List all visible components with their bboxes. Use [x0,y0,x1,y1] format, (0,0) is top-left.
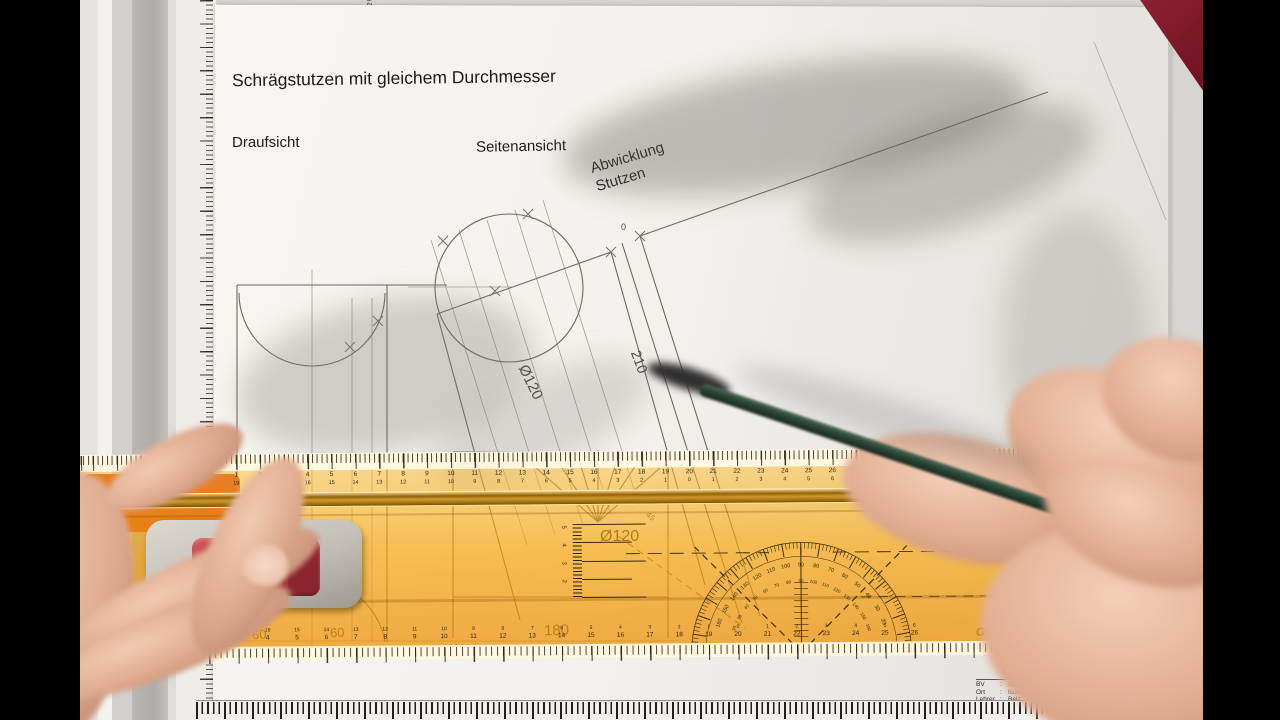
ruler-number: 15 [584,632,598,639]
ruler-number: 14 [539,469,553,476]
ruler-number: 4 [587,478,601,484]
protractor-degree-label: 150 [859,612,867,621]
protractor-degree-label: 70 [827,567,835,575]
ruler-number: 15 [563,469,577,476]
ruler-number: 4 [778,476,792,482]
protractor-degree-label: 120 [752,572,763,582]
ruler-number: 21 [706,468,720,475]
ruler-number: 12 [496,633,510,640]
ruler-number: 14 [555,632,569,639]
ruler-number: 1 [706,477,720,483]
protractor-degree-label: 60 [840,573,848,581]
ruler-number: 5 [878,623,892,629]
ruler-number: 23 [754,468,768,475]
ruler-number: 4 [849,623,863,629]
ruler-number: 7 [525,625,539,631]
ruler-number: 9 [466,626,480,632]
ruler-number: 26 [825,467,839,474]
ruler-number: 2 [635,478,649,484]
ruler-number: 18 [635,469,649,476]
ruler-number: 13 [525,632,539,639]
ruler-number: 15 [325,480,339,486]
ruler-number: 15 [290,627,304,633]
ruler-number: 1 [659,477,673,483]
ruler-number: 7 [349,634,363,641]
ruler-number: 10 [444,470,458,477]
protractor-degree-label: 30 [872,604,880,612]
ruler-number: 1 [229,472,243,479]
ruler-number: 26 [907,629,921,636]
ruler-number: 9 [420,470,434,477]
mini-scale-number: 5 [560,526,566,529]
protractor-degree-label: 140 [729,591,739,602]
ruler-number: 0 [731,624,745,630]
ruler-number: 25 [878,630,892,637]
letterbox-right [1203,0,1280,720]
protractor-degree-label: 100 [781,563,791,571]
ruler-number: 16 [587,469,601,476]
ruler-number: 22 [790,630,804,637]
ruler-number: 5 [325,471,339,478]
ruler-number: 6 [348,471,362,478]
ruler-number: 11 [466,633,480,640]
ruler-number: 6 [825,476,839,482]
ruler-number: 7 [515,478,529,484]
ruler-number: 17 [611,469,625,476]
ruler-number: 2 [730,477,744,483]
ruler-number: 5 [584,625,598,631]
ruler-number: 19 [658,468,672,475]
paper-corner-line [1094,42,1166,220]
ruler-number: 24 [849,630,863,637]
letterbox-left [0,0,80,720]
mini-scale-number: 3 [561,562,567,565]
protractor-degree-label: 130 [843,593,852,602]
ruler-number: 0 [682,477,696,483]
ruler-number: 10 [444,479,458,485]
ruler-number: 1 [702,624,716,630]
protractor-degree-label: 150 [721,604,731,615]
protractor-degree-label: 50 [853,581,862,590]
ruler-number: 8 [378,634,392,641]
ruler-number: 6 [539,478,553,484]
ruler-number: 11 [420,479,434,485]
ruler-number: 3 [611,478,625,484]
ruler-number: 8 [396,470,410,477]
ruler-number: 24 [778,467,792,474]
ruler-number: 5 [563,478,577,484]
ruler-number: 4 [261,634,275,641]
protractor-degree-label: 110 [766,566,776,575]
ruler-number: 18 [672,631,686,638]
ruler-number: 2 [672,624,686,630]
ruler-number: 9 [408,633,422,640]
protractor-degree-label: 140 [852,601,861,610]
ruler-number: 17 [643,631,657,638]
ruler-number: 16 [613,632,627,639]
ruler-number: 12 [491,470,505,477]
mini-scale-number: 4 [560,544,566,547]
ruler-number: 21 [760,631,774,638]
ruler-number: 25 [802,467,816,474]
protractor-degree-label: 40 [864,592,873,601]
ruler-number: 9 [468,479,482,485]
protractor-degree-label: 50 [752,594,759,601]
photo-drafting-board: 14 2913 2812 2711 2610 259 248 237 226 2… [0,0,1280,720]
ruler-number: 2 [790,623,804,629]
ruler-number: 7 [372,471,386,478]
ruler-number: 20 [682,468,696,475]
label-side-view: Seitenansicht [476,137,566,156]
protractor-degree-label: 120 [832,586,841,594]
ruler-number: 13 [372,480,386,486]
protractor-degree-label: 80 [813,563,820,570]
protractor-degree-label: 40 [743,603,750,610]
ruler-number: 10 [437,626,451,632]
left-fingernail [242,544,288,586]
ruler-number: 22 [730,468,744,475]
mini-scale-number: 2 [561,580,567,583]
ruler-number: 5 [802,476,816,482]
ruler-number: 13 [515,469,529,476]
ruler-number: 14 [319,627,333,633]
ruler-number: 3 [819,623,833,629]
ruler-number: 19 [229,481,243,487]
zero-mark: 0 [621,222,626,232]
protractor-degree-label: 60 [762,587,769,594]
ruler-number: 14 [348,480,362,486]
ruler-number: 6 [319,634,333,641]
ruler-number: 8 [496,626,510,632]
ruler-number: 12 [378,627,392,633]
ruler-number: 11 [468,470,482,477]
ruler-number: 1 [760,624,774,630]
protractor-degree-label: 80 [786,579,792,585]
ruler-number: 3 [643,624,657,630]
ruler-number: 10 [437,633,451,640]
ruler-number: 8 [492,479,506,485]
protractor-degree-label: 130 [740,581,751,592]
ruler-number: 6 [907,622,921,628]
stamp-cell: BV [976,681,1000,689]
ruler-number: 4 [613,625,627,631]
protractor-degree-label: 110 [821,581,830,588]
ruler-number: 12 [396,479,410,485]
ruler-number: 3 [754,477,768,483]
label-top-view: Draufsicht [232,134,300,151]
protractor-degree-label: 70 [773,582,780,589]
protractor-degree-label: 100 [809,579,818,585]
ruler-number: 5 [290,634,304,641]
stamp-cell: Ort [976,689,1000,697]
ruler-number: 23 [819,630,833,637]
ruler-number: 11 [408,626,422,632]
protractor-degree-label: 30 [736,613,743,620]
ruler-number: 13 [349,627,363,633]
stamp-cell: : [1000,689,1008,697]
ruler-number: 19 [702,631,716,638]
ruler-number: 20 [731,631,745,638]
ruler-number: 6 [555,625,569,631]
